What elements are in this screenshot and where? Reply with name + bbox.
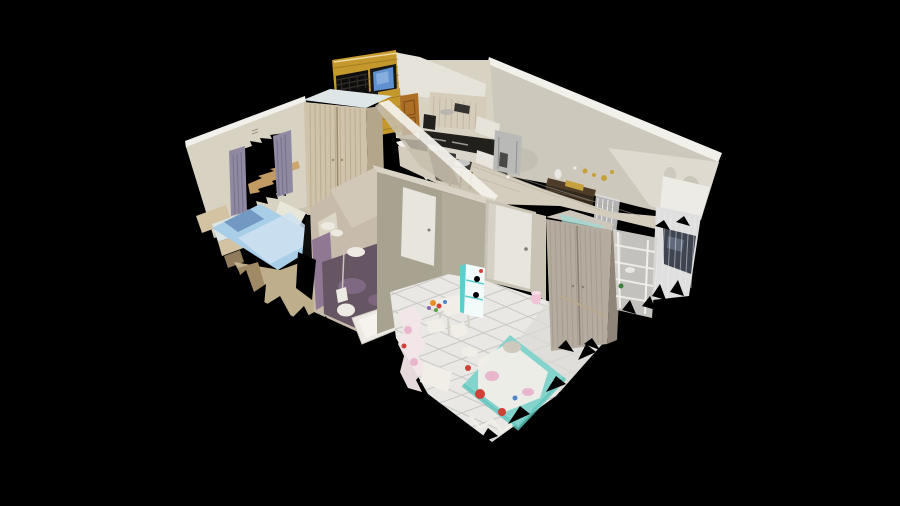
bed-pink-patch: [522, 388, 534, 396]
fridge: [493, 130, 522, 176]
kids-door-handle: [524, 247, 528, 251]
shelf-red-dot: [479, 269, 483, 273]
gold-wall-decor: [592, 173, 596, 177]
dollhouse-viewer[interactable]: [0, 0, 900, 506]
green-bottle: [619, 284, 624, 289]
bed-blue-dot: [513, 396, 518, 401]
shelf-orange-circle: [474, 276, 480, 282]
right-wardrobe: [546, 210, 622, 351]
wall-strip: [534, 213, 546, 302]
wardrobe-handle: [332, 159, 334, 161]
bed-red-spot: [465, 365, 471, 371]
right-wardrobe-handle: [572, 285, 575, 288]
bathroom-sink: [347, 247, 365, 257]
pink-bucket-rim: [531, 291, 541, 295]
bed-red-spot: [498, 408, 506, 416]
red-toy: [402, 344, 407, 349]
toy-purple: [427, 306, 431, 310]
towel: [321, 222, 335, 230]
metal-pot: [440, 109, 454, 115]
plush-toy: [503, 341, 521, 353]
white-vase: [555, 169, 562, 179]
bed-pillow: [462, 347, 478, 357]
right-wardrobe-handle: [582, 286, 585, 289]
gold-wall-decor: [601, 175, 607, 181]
rack-item: [625, 267, 635, 273]
toy-blue: [443, 300, 447, 304]
shelf-orange-circle: [473, 292, 479, 298]
gold-wall-decor: [610, 170, 614, 174]
gold-wall-decor: [583, 169, 588, 174]
toilet-bowl: [337, 304, 355, 317]
toy-red: [437, 304, 442, 309]
towel: [331, 230, 343, 237]
hall-door-handle: [428, 229, 431, 232]
bed-pink-patch: [485, 371, 499, 381]
wardrobe-handle: [341, 159, 343, 161]
fridge-panel: [499, 152, 508, 168]
pink-toy: [404, 326, 412, 334]
toy-orange: [430, 300, 436, 306]
floor-sconce-dot: [507, 176, 510, 179]
wall-dot: [574, 167, 577, 170]
toy-green: [434, 308, 438, 312]
pink-toy: [410, 358, 418, 366]
hall-door: [401, 187, 436, 266]
coffee-machine: [423, 114, 436, 130]
bed-red-spot: [475, 389, 485, 399]
